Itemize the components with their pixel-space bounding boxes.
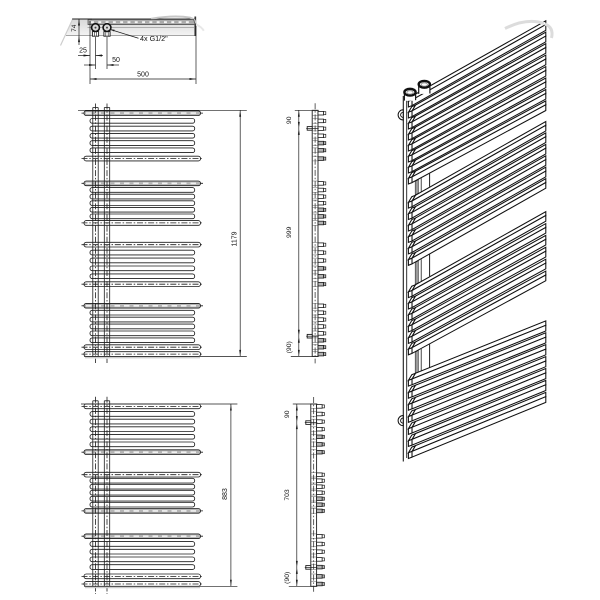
svg-text:703: 703 <box>284 489 291 501</box>
svg-text:50: 50 <box>112 57 120 64</box>
svg-text:4x G1/2": 4x G1/2" <box>140 34 168 43</box>
svg-text:90: 90 <box>284 410 291 418</box>
svg-text:(90): (90) <box>286 341 293 353</box>
svg-text:(90): (90) <box>284 572 291 584</box>
svg-text:500: 500 <box>137 71 149 78</box>
svg-text:999: 999 <box>286 226 293 238</box>
svg-text:25: 25 <box>79 48 87 55</box>
svg-text:1179: 1179 <box>231 231 238 246</box>
svg-text:74: 74 <box>71 24 78 32</box>
svg-text:883: 883 <box>222 488 229 500</box>
svg-text:90: 90 <box>286 116 293 124</box>
